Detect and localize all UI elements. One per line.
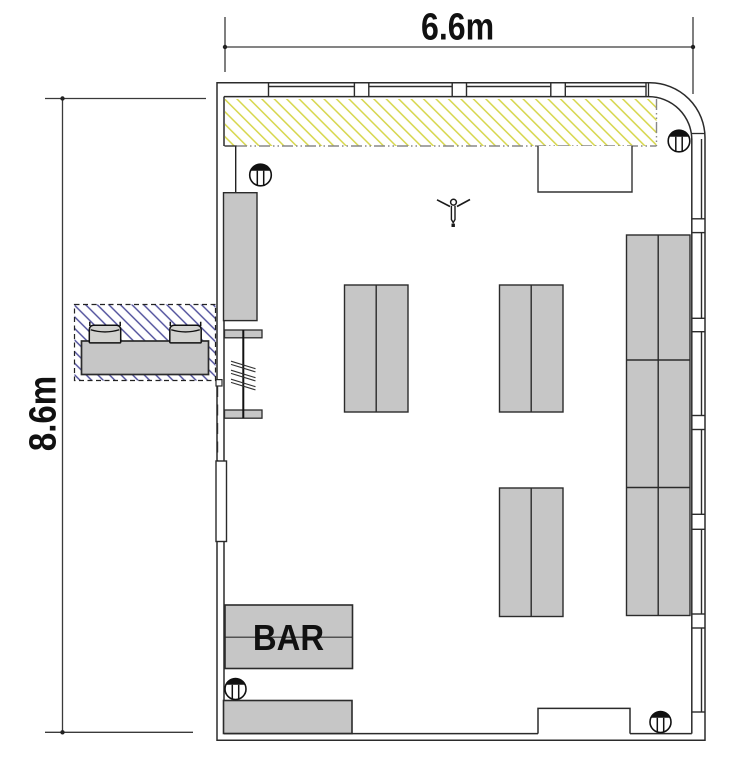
svg-text:BAR: BAR (253, 618, 324, 658)
svg-text:8.6m: 8.6m (21, 376, 64, 451)
svg-text:6.6m: 6.6m (421, 6, 494, 48)
